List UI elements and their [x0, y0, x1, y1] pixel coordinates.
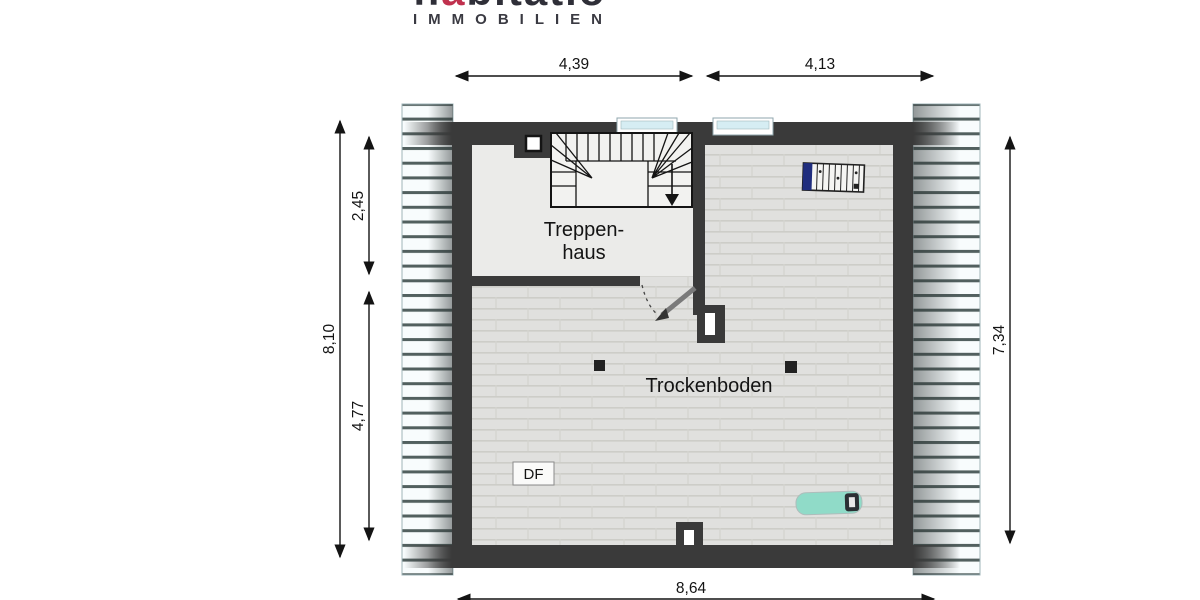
wall-fade-top-left: [404, 122, 452, 145]
attic-label: Trockenboden: [645, 375, 772, 397]
interior-wall-horizontal: [472, 276, 640, 286]
wall-fade-bottom-right: [913, 545, 960, 568]
stairwell-label-line2: haus: [562, 242, 605, 264]
roof-hatching-left: [402, 104, 453, 575]
roof-window-tag-label: DF: [524, 466, 544, 483]
dim-top-right-width: 4,13: [805, 56, 835, 73]
roof-hatching-right: [913, 104, 980, 575]
roof-shade-right: [913, 104, 960, 575]
dim-left-attic-height: 4,77: [350, 401, 367, 431]
dim-left-total-height: 8,10: [321, 324, 338, 355]
chimney-middle: [697, 305, 725, 343]
radiator: [803, 163, 865, 192]
floorplan-drawing: DF Treppen- haus Trockenboden 4,39 4,13 …: [0, 0, 1200, 600]
column-post-right: [785, 361, 797, 373]
wall-fade-top-right: [913, 122, 960, 145]
stairwell-label-line1: Treppen-: [544, 219, 624, 241]
exterior-wall-bottom: [452, 545, 913, 568]
lounger: [796, 491, 863, 515]
column-post-left: [594, 360, 605, 371]
staircase: [551, 133, 692, 207]
radiator-valve: [803, 163, 813, 190]
roof-window-top-2: [713, 118, 773, 135]
chimney-bottom: [676, 522, 703, 548]
dim-top-left-width: 4,39: [559, 56, 589, 73]
roof-shade-left: [428, 104, 453, 575]
dim-right-height: 7,34: [991, 325, 1008, 356]
exterior-wall-left: [452, 122, 472, 568]
dim-bottom-width: 8,64: [676, 580, 707, 597]
floorplan-page: habitatio IMMOBILIEN: [0, 0, 1200, 600]
dim-left-stairwell-height: 2,45: [350, 191, 367, 221]
exterior-wall-right: [893, 122, 913, 568]
wall-fade-bottom-left: [404, 545, 452, 568]
roof-window-tag: DF: [513, 462, 554, 485]
